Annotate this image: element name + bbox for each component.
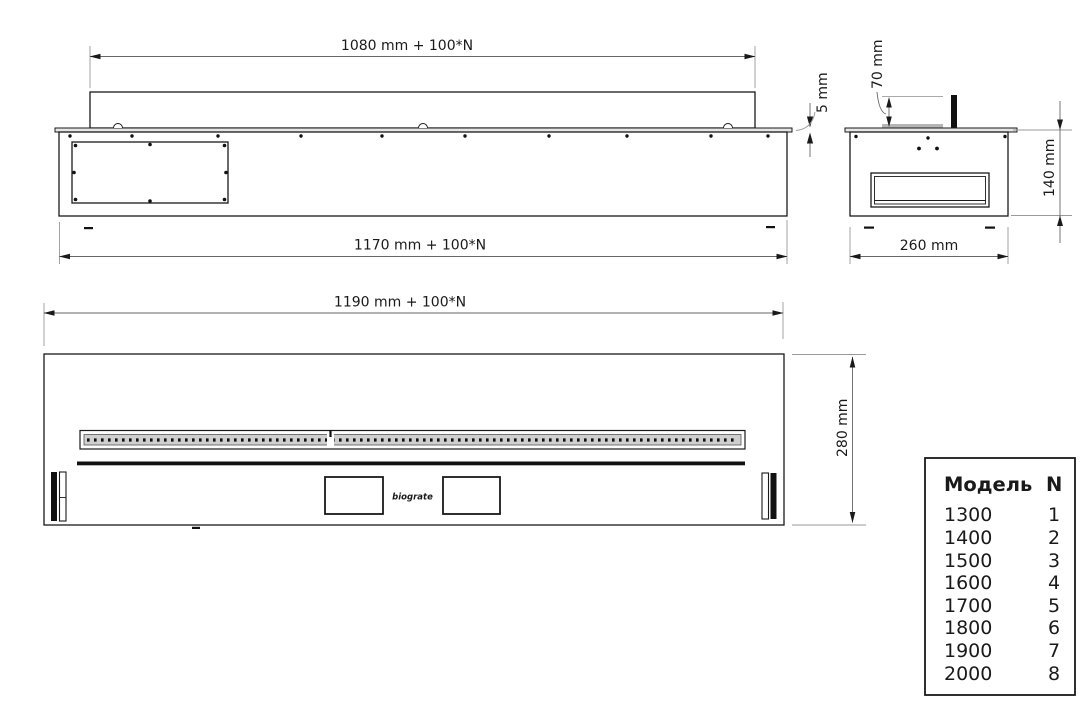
dim-label-side-bottom-length: 1170 mm + 100*N bbox=[354, 238, 486, 254]
table-cell-n: 3 bbox=[1048, 550, 1060, 572]
dim-side-top-length: 1080 mm + 100*N bbox=[90, 38, 755, 88]
table-cell-model: 1300 bbox=[944, 504, 992, 526]
service-hatch-right bbox=[443, 477, 500, 514]
dim-label-side-top-length: 1080 mm + 100*N bbox=[341, 38, 473, 54]
side-view: 1080 mm + 100*N 1170 mm + 100*N 5 mm bbox=[55, 38, 831, 264]
dim-burner-height: 70 mm bbox=[870, 39, 892, 127]
dim-label-top-depth: 280 mm bbox=[835, 399, 851, 457]
plate-bump bbox=[419, 124, 428, 129]
table-cell-model: 1500 bbox=[944, 550, 992, 572]
dim-label-end-width: 260 mm bbox=[900, 238, 958, 254]
table-cell-model: 1900 bbox=[944, 640, 992, 662]
plate-bump bbox=[114, 124, 123, 129]
table-cell-n: 4 bbox=[1048, 572, 1060, 594]
table-cell-n: 7 bbox=[1048, 640, 1060, 662]
side-burner-box bbox=[90, 92, 755, 128]
foot-mark bbox=[864, 227, 874, 229]
dim-label-body-height: 140 mm bbox=[1042, 139, 1058, 197]
table-cell-n: 1 bbox=[1048, 504, 1060, 526]
table-cell-model: 1800 bbox=[944, 617, 992, 639]
dim-plate-thickness: 5 mm bbox=[796, 72, 831, 157]
model-table-header-n: N bbox=[1046, 473, 1062, 496]
dim-top-depth: 280 mm bbox=[792, 355, 866, 526]
side-access-panel bbox=[72, 142, 228, 203]
dim-end-width: 260 mm bbox=[850, 227, 1008, 264]
table-cell-model: 1600 bbox=[944, 572, 992, 594]
dim-label-plate-thickness: 5 mm bbox=[815, 72, 831, 113]
model-table: Модель N 1300 1 1400 2 1500 3 1600 4 170… bbox=[925, 458, 1075, 695]
model-table-header-model: Модель bbox=[944, 473, 1032, 496]
foot-mark bbox=[766, 226, 775, 228]
end-view: 70 mm 140 mm 260 mm bbox=[845, 39, 1072, 264]
burner-strip-joint-pin bbox=[329, 430, 331, 437]
technical-drawing-page: 1080 mm + 100*N 1170 mm + 100*N 5 mm bbox=[0, 0, 1089, 712]
front-edge-line bbox=[77, 462, 745, 466]
brand-logo: biograte bbox=[392, 493, 433, 503]
plate-bump bbox=[724, 124, 733, 129]
dim-label-burner-height: 70 mm bbox=[870, 39, 886, 89]
table-cell-model: 1400 bbox=[944, 527, 992, 549]
foot-mark bbox=[84, 227, 93, 229]
table-cell-model: 2000 bbox=[944, 663, 992, 685]
dim-side-bottom-length: 1170 mm + 100*N bbox=[60, 220, 788, 264]
end-opening bbox=[871, 173, 989, 207]
burner-tray-plate bbox=[882, 124, 943, 128]
top-view: biograte 1190 mm + 100*N 280 mm bbox=[44, 295, 866, 530]
fireplace-dimension-drawing: 1080 mm + 100*N 1170 mm + 100*N 5 mm bbox=[0, 0, 1089, 712]
table-cell-n: 6 bbox=[1048, 617, 1060, 639]
table-cell-n: 8 bbox=[1048, 663, 1060, 685]
foot-mark bbox=[985, 227, 995, 229]
dim-label-top-length: 1190 mm + 100*N bbox=[334, 295, 466, 311]
table-cell-n: 2 bbox=[1048, 527, 1060, 549]
dim-top-length: 1190 mm + 100*N bbox=[44, 295, 783, 347]
control-knob bbox=[951, 95, 957, 128]
service-hatch-left bbox=[325, 477, 383, 514]
table-cell-n: 5 bbox=[1048, 595, 1060, 617]
bottom-edge-mark bbox=[192, 527, 200, 529]
dim-body-height: 140 mm bbox=[1011, 101, 1072, 243]
table-cell-model: 1700 bbox=[944, 595, 992, 617]
